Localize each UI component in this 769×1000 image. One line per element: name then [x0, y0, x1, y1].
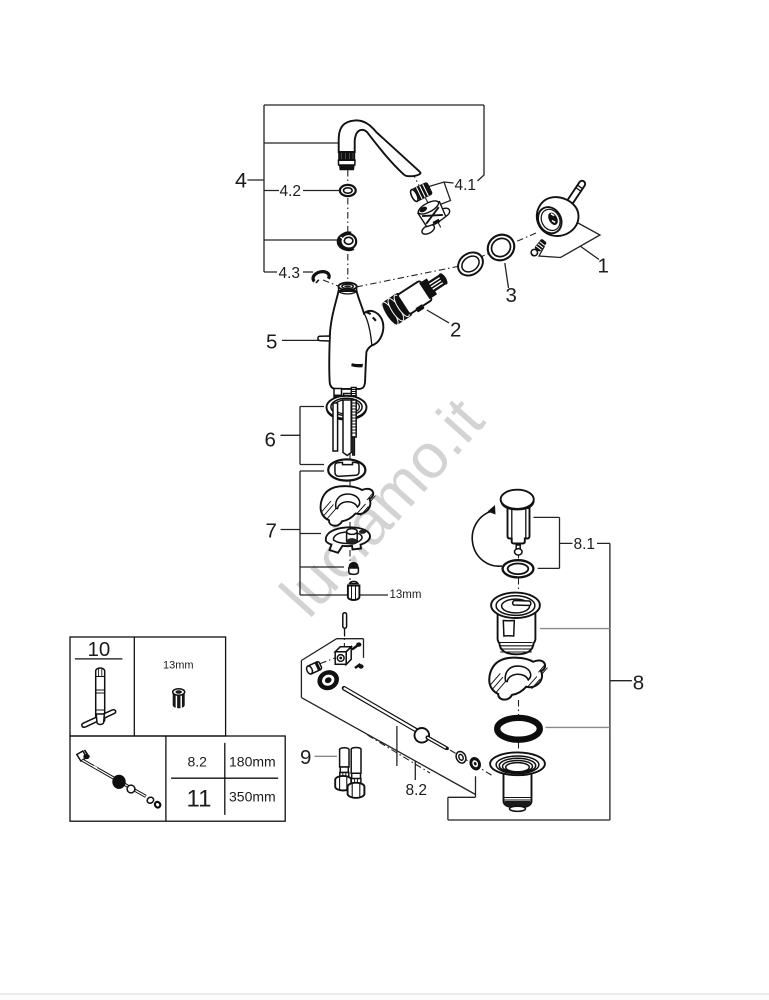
- svg-text:8: 8: [633, 672, 644, 695]
- svg-text:13mm: 13mm: [390, 589, 422, 601]
- svg-text:4.1: 4.1: [455, 177, 477, 194]
- svg-text:10: 10: [88, 638, 111, 661]
- svg-text:11: 11: [187, 786, 212, 813]
- svg-text:4.3: 4.3: [279, 265, 301, 282]
- svg-text:9: 9: [300, 746, 311, 769]
- svg-text:1: 1: [598, 254, 609, 277]
- svg-text:6: 6: [265, 429, 276, 452]
- svg-text:350mm: 350mm: [229, 789, 276, 805]
- svg-text:4.2: 4.2: [280, 183, 302, 200]
- svg-text:5: 5: [266, 331, 277, 354]
- svg-text:3: 3: [506, 284, 517, 307]
- svg-text:4: 4: [235, 169, 247, 193]
- svg-text:8.2: 8.2: [188, 754, 208, 770]
- svg-text:13mm: 13mm: [163, 660, 194, 672]
- svg-text:180mm: 180mm: [229, 754, 276, 770]
- svg-text:7: 7: [266, 520, 277, 543]
- svg-text:2: 2: [450, 319, 461, 342]
- svg-text:8.2: 8.2: [406, 782, 428, 799]
- svg-text:8.1: 8.1: [574, 536, 596, 553]
